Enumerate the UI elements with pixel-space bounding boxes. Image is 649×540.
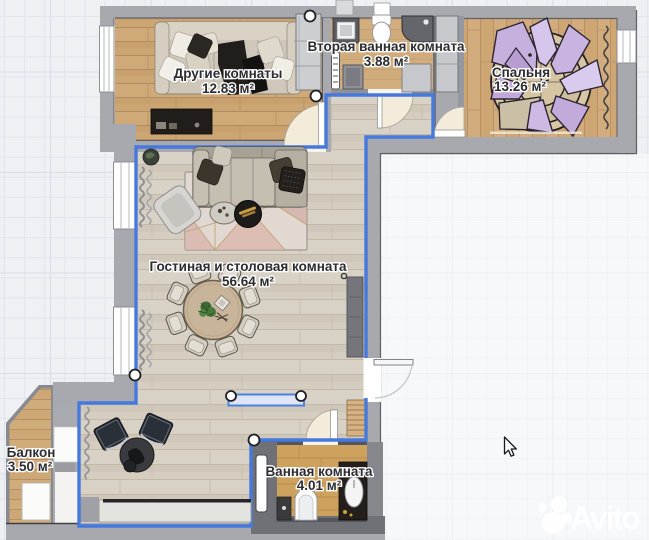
svg-text:12.83 м²: 12.83 м² (202, 81, 255, 96)
svg-text:56.64 м²: 56.64 м² (222, 274, 275, 289)
svg-text:3.88 м²: 3.88 м² (364, 54, 409, 69)
svg-text:Спальня: Спальня (492, 65, 550, 80)
svg-text:3.50 м²: 3.50 м² (8, 459, 53, 474)
svg-text:Гостиная и столовая комната: Гостиная и столовая комната (150, 259, 347, 274)
svg-text:13.26 м²: 13.26 м² (494, 79, 547, 94)
svg-text:Ванная комната: Ванная комната (265, 464, 373, 479)
svg-text:Avito: Avito (570, 500, 640, 536)
svg-text:Вторая ванная комната: Вторая ванная комната (307, 39, 465, 54)
svg-text:Балкон: Балкон (7, 445, 56, 460)
svg-text:Другие комнаты: Другие комнаты (174, 66, 283, 81)
svg-text:4.01 м²: 4.01 м² (297, 478, 342, 493)
